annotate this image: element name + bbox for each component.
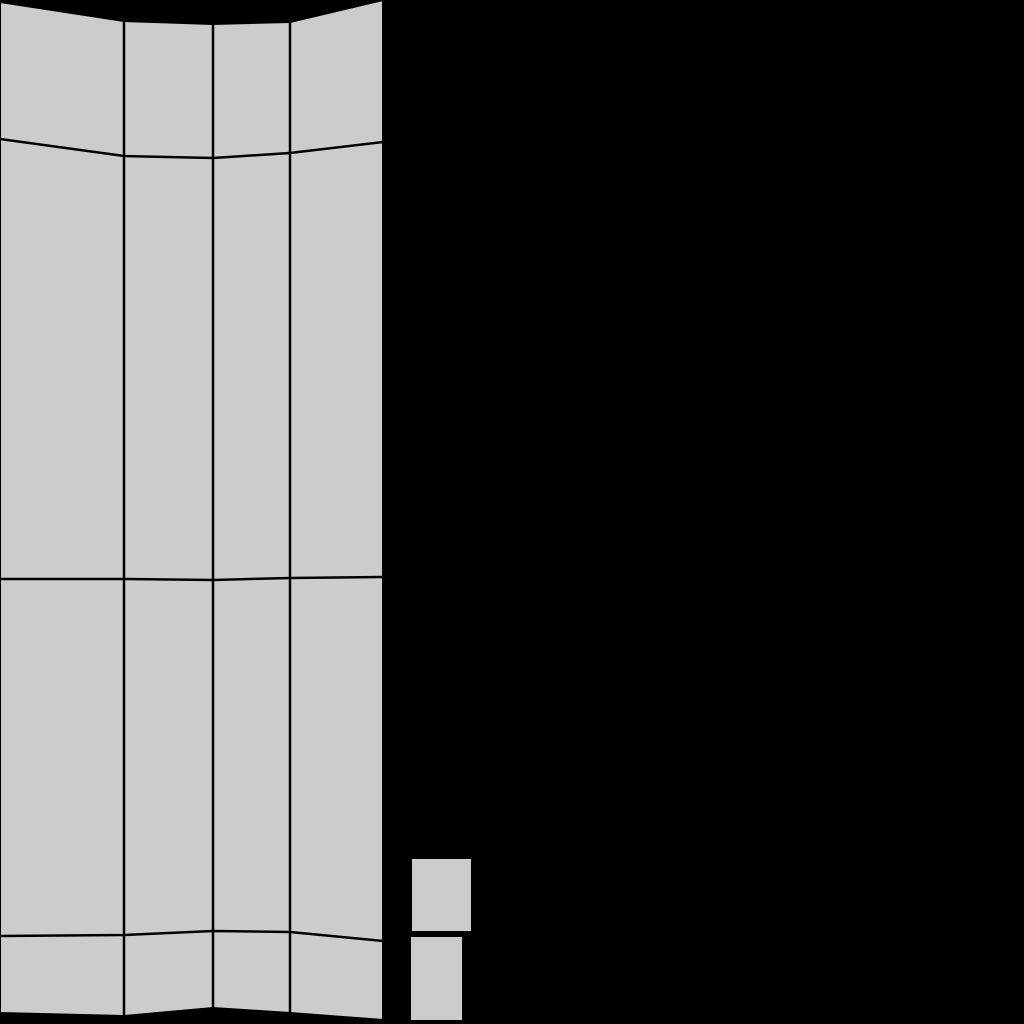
detached-quad-1 [411,858,472,932]
render-viewport [0,0,1024,1024]
detached-quad-2 [410,936,463,1021]
mesh-silhouette [0,0,383,1020]
mesh-scene [0,0,1024,1024]
